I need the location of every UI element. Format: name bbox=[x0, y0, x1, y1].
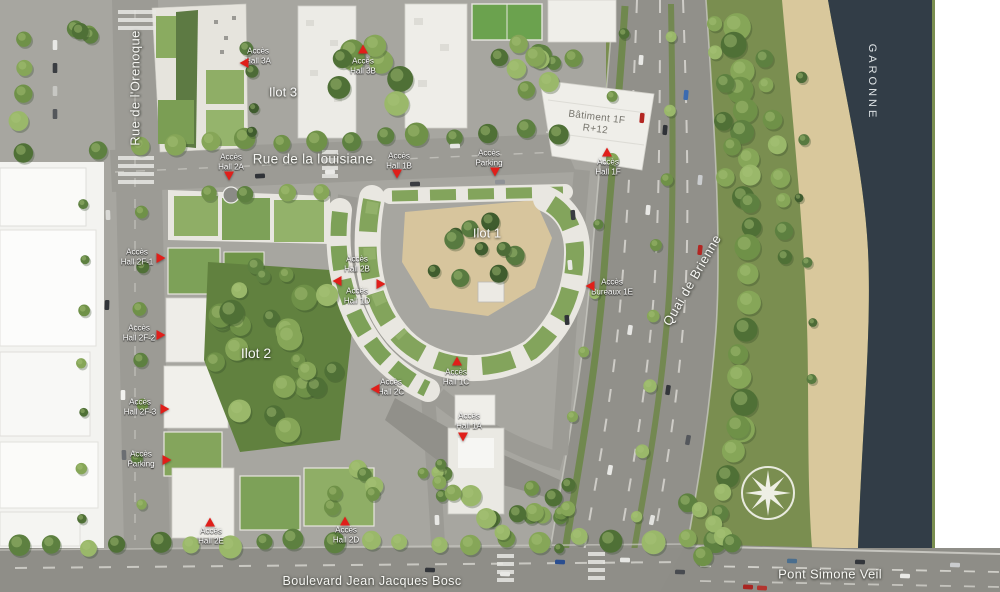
tree-highlight bbox=[742, 167, 753, 178]
tree-highlight bbox=[709, 18, 717, 26]
car bbox=[425, 568, 435, 573]
tree-highlight bbox=[595, 220, 600, 225]
tree-highlight bbox=[138, 500, 143, 505]
tree-highlight bbox=[233, 284, 241, 292]
tree-highlight bbox=[740, 293, 752, 305]
tree-highlight bbox=[281, 186, 290, 195]
car bbox=[564, 315, 569, 325]
tree-highlight bbox=[278, 420, 291, 433]
tree-highlight bbox=[737, 320, 749, 332]
tree-highlight bbox=[258, 535, 266, 543]
car bbox=[620, 558, 630, 563]
site-plan-map: Rue de l'Orenoque Rue de la louisiane Qu… bbox=[0, 0, 1000, 592]
car bbox=[567, 260, 572, 270]
tree-highlight bbox=[637, 446, 644, 453]
tree-highlight bbox=[714, 506, 722, 514]
tree-highlight bbox=[476, 243, 483, 250]
tree-highlight bbox=[250, 104, 255, 109]
car bbox=[645, 205, 650, 215]
tree-highlight bbox=[492, 267, 501, 276]
tree-highlight bbox=[568, 412, 574, 418]
tree-highlight bbox=[607, 154, 613, 160]
tree-highlight bbox=[447, 486, 455, 494]
tree-highlight bbox=[138, 262, 144, 268]
tree-highlight bbox=[773, 170, 783, 180]
tree-highlight bbox=[779, 251, 786, 258]
tree-highlight bbox=[133, 139, 142, 148]
map-canvas bbox=[0, 0, 1000, 592]
tree-highlight bbox=[527, 505, 536, 514]
tree-highlight bbox=[248, 128, 253, 133]
tree-highlight bbox=[730, 367, 742, 379]
tree-highlight bbox=[237, 130, 248, 141]
tree-highlight bbox=[258, 271, 265, 278]
tree-highlight bbox=[580, 348, 585, 353]
tree-highlight bbox=[228, 340, 240, 352]
tree-highlight bbox=[153, 534, 164, 545]
tree-highlight bbox=[563, 479, 570, 486]
tree-highlight bbox=[110, 537, 119, 546]
tree-highlight bbox=[74, 25, 82, 33]
tree-highlight bbox=[645, 533, 657, 545]
tree-highlight bbox=[620, 29, 625, 34]
tree-highlight bbox=[247, 66, 254, 73]
tree-highlight bbox=[437, 491, 443, 497]
tree-highlight bbox=[419, 469, 424, 474]
tree-highlight bbox=[736, 101, 748, 113]
car bbox=[500, 572, 510, 577]
tree-highlight bbox=[760, 79, 767, 86]
tree-highlight bbox=[91, 143, 100, 152]
tree-highlight bbox=[359, 469, 366, 476]
tree-highlight bbox=[480, 126, 490, 136]
tree-highlight bbox=[137, 207, 143, 213]
tree-highlight bbox=[184, 538, 193, 547]
tree-highlight bbox=[408, 125, 420, 137]
tree-highlight bbox=[267, 407, 277, 417]
car bbox=[450, 144, 460, 149]
tree-highlight bbox=[808, 375, 813, 380]
tree-highlight bbox=[512, 37, 521, 46]
tree-highlight bbox=[18, 33, 26, 41]
tree-highlight bbox=[680, 495, 689, 504]
tree-highlight bbox=[134, 303, 141, 310]
tree-highlight bbox=[327, 534, 338, 545]
car bbox=[697, 175, 702, 185]
tree-highlight bbox=[208, 354, 218, 364]
car bbox=[435, 515, 440, 525]
tree-highlight bbox=[493, 50, 502, 59]
tree-highlight bbox=[718, 76, 727, 85]
tree-highlight bbox=[295, 287, 308, 300]
tree-highlight bbox=[725, 442, 736, 453]
tree-highlight bbox=[204, 134, 213, 143]
tree-highlight bbox=[716, 485, 725, 494]
tree-highlight bbox=[44, 537, 53, 546]
tree-highlight bbox=[241, 43, 248, 50]
tree-highlight bbox=[434, 477, 441, 484]
tree-highlight bbox=[511, 507, 520, 516]
car bbox=[53, 109, 58, 119]
tree-highlight bbox=[447, 232, 457, 242]
tree-highlight bbox=[765, 112, 775, 122]
tree-highlight bbox=[11, 113, 21, 123]
tree-highlight bbox=[551, 126, 561, 136]
tree-highlight bbox=[800, 135, 806, 141]
tree-highlight bbox=[77, 359, 82, 364]
tree-highlight bbox=[330, 78, 341, 89]
tree-highlight bbox=[645, 381, 652, 388]
tree-highlight bbox=[541, 74, 551, 84]
tree-highlight bbox=[803, 258, 808, 263]
tree-highlight bbox=[319, 286, 330, 297]
tree-highlight bbox=[740, 265, 751, 276]
tree-highlight bbox=[743, 195, 753, 205]
block-ilot-3 bbox=[152, 4, 248, 152]
tree-highlight bbox=[364, 533, 373, 542]
tree-highlight bbox=[731, 346, 741, 356]
tree-highlight bbox=[80, 306, 86, 312]
tree-highlight bbox=[727, 16, 741, 30]
car bbox=[555, 560, 565, 565]
car bbox=[121, 390, 126, 400]
car bbox=[675, 570, 685, 575]
tree-highlight bbox=[591, 290, 596, 295]
tree-highlight bbox=[719, 467, 730, 478]
tree-highlight bbox=[729, 417, 741, 429]
tree-highlight bbox=[716, 529, 725, 538]
warehouse-strip bbox=[0, 162, 104, 550]
car bbox=[53, 40, 58, 50]
car bbox=[325, 169, 335, 174]
car bbox=[855, 560, 865, 565]
car bbox=[53, 86, 58, 96]
tree-highlight bbox=[79, 200, 84, 205]
tree-highlight bbox=[329, 487, 336, 494]
tree-highlight bbox=[526, 482, 534, 490]
compass-rose-icon bbox=[742, 467, 794, 519]
tree-highlight bbox=[509, 61, 519, 71]
tree-highlight bbox=[222, 302, 234, 314]
car bbox=[639, 113, 644, 123]
tree-highlight bbox=[662, 174, 668, 180]
tree-highlight bbox=[327, 364, 337, 374]
tree-highlight bbox=[448, 131, 456, 139]
car bbox=[410, 182, 420, 187]
tree-highlight bbox=[744, 219, 754, 229]
car bbox=[787, 559, 797, 564]
tree-highlight bbox=[694, 503, 702, 511]
tree-highlight bbox=[222, 538, 234, 550]
tree-highlight bbox=[429, 266, 435, 272]
car bbox=[950, 563, 960, 568]
tree-highlight bbox=[567, 51, 576, 60]
tree-highlight bbox=[758, 51, 767, 60]
tree-highlight bbox=[520, 83, 529, 92]
tree-highlight bbox=[344, 134, 353, 143]
tree-highlight bbox=[725, 140, 734, 149]
tree-highlight bbox=[433, 538, 441, 546]
tree-highlight bbox=[681, 531, 690, 540]
tree-highlight bbox=[777, 224, 786, 233]
tree-highlight bbox=[285, 531, 295, 541]
tree-highlight bbox=[135, 354, 142, 361]
tree-highlight bbox=[562, 503, 570, 511]
car bbox=[743, 584, 753, 589]
car bbox=[570, 210, 575, 220]
tree-highlight bbox=[393, 535, 401, 543]
tree-highlight bbox=[367, 37, 378, 48]
tree-highlight bbox=[133, 454, 139, 460]
tree-highlight bbox=[707, 517, 715, 525]
tree-highlight bbox=[437, 460, 442, 465]
tree-highlight bbox=[724, 34, 737, 47]
tree-highlight bbox=[479, 510, 489, 520]
tree-highlight bbox=[326, 501, 334, 509]
tree-highlight bbox=[78, 515, 83, 520]
tree-highlight bbox=[293, 355, 300, 362]
tree-highlight bbox=[463, 537, 473, 547]
tree-highlight bbox=[725, 536, 734, 545]
tree-highlight bbox=[265, 311, 273, 319]
tree-highlight bbox=[555, 545, 560, 550]
tree-highlight bbox=[250, 260, 258, 268]
tree-highlight bbox=[309, 133, 320, 144]
tree-highlight bbox=[483, 214, 492, 223]
tree-highlight bbox=[16, 145, 26, 155]
tree-highlight bbox=[696, 548, 706, 558]
tree-highlight bbox=[796, 194, 800, 198]
tree-highlight bbox=[453, 271, 462, 280]
tree-highlight bbox=[281, 269, 288, 276]
tree-highlight bbox=[734, 392, 748, 406]
tree-highlight bbox=[82, 542, 90, 550]
tree-highlight bbox=[738, 237, 751, 250]
tree-highlight bbox=[367, 479, 376, 488]
car bbox=[662, 125, 667, 135]
tree-highlight bbox=[239, 188, 247, 196]
tree-highlight bbox=[573, 530, 581, 538]
tree-highlight bbox=[602, 532, 614, 544]
tree-highlight bbox=[648, 311, 654, 317]
tree-highlight bbox=[651, 240, 657, 246]
tree-highlight bbox=[741, 150, 752, 161]
tree-highlight bbox=[16, 86, 25, 95]
tree-highlight bbox=[810, 319, 814, 323]
car bbox=[638, 55, 643, 65]
tree-highlight bbox=[528, 49, 538, 59]
tree-highlight bbox=[300, 364, 309, 373]
tree-highlight bbox=[80, 409, 84, 413]
tree-highlight bbox=[167, 136, 178, 147]
tree-highlight bbox=[231, 402, 242, 413]
tree-highlight bbox=[608, 92, 613, 97]
car bbox=[683, 90, 688, 100]
tree-highlight bbox=[379, 129, 388, 138]
car bbox=[255, 173, 265, 178]
tree-highlight bbox=[547, 491, 556, 500]
tree-highlight bbox=[667, 32, 672, 37]
tree-highlight bbox=[77, 464, 83, 470]
tree-highlight bbox=[18, 62, 26, 70]
tree-highlight bbox=[335, 51, 345, 61]
tree-highlight bbox=[778, 194, 785, 201]
car bbox=[106, 210, 111, 220]
tree-highlight bbox=[11, 537, 22, 548]
tree-highlight bbox=[496, 526, 504, 534]
tree-highlight bbox=[770, 137, 779, 146]
tree-highlight bbox=[463, 222, 471, 230]
tree-highlight bbox=[368, 488, 375, 495]
tree-highlight bbox=[463, 487, 474, 498]
car bbox=[757, 585, 767, 590]
tree-highlight bbox=[351, 462, 360, 471]
car bbox=[105, 300, 110, 310]
tree-highlight bbox=[733, 61, 745, 73]
tree-highlight bbox=[203, 187, 211, 195]
tree-highlight bbox=[82, 256, 87, 261]
car bbox=[900, 574, 910, 579]
tree-highlight bbox=[716, 114, 725, 123]
tree-highlight bbox=[276, 378, 287, 389]
tree-highlight bbox=[275, 137, 283, 145]
tree-highlight bbox=[498, 243, 505, 250]
compass-star bbox=[745, 470, 791, 516]
car bbox=[122, 450, 127, 460]
tree-highlight bbox=[666, 106, 672, 112]
tree-highlight bbox=[733, 122, 745, 134]
tree-highlight bbox=[519, 121, 528, 130]
car bbox=[53, 63, 58, 73]
tree-highlight bbox=[315, 186, 323, 194]
tree-highlight bbox=[632, 512, 638, 518]
car bbox=[495, 180, 505, 185]
tree-highlight bbox=[797, 73, 803, 79]
tree-highlight bbox=[710, 47, 717, 54]
tree-highlight bbox=[531, 534, 542, 545]
tree-highlight bbox=[718, 170, 727, 179]
tree-highlight bbox=[387, 94, 399, 106]
tree-highlight bbox=[280, 328, 293, 341]
tree-highlight bbox=[138, 400, 144, 406]
